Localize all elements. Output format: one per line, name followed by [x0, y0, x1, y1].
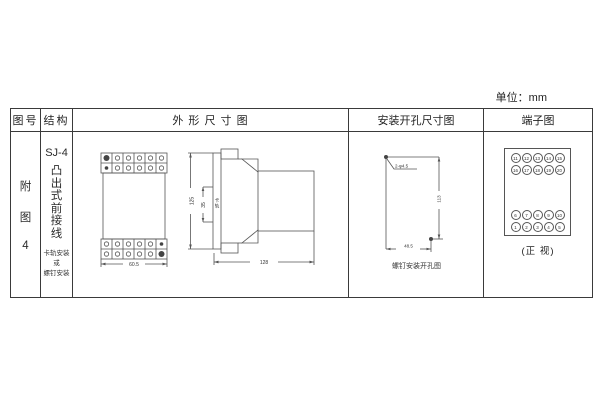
mounting-note: 卡轨安装或螺钉安装	[44, 249, 70, 278]
noteline: 卡轨安装	[44, 249, 70, 259]
model-label: SJ-4	[45, 147, 68, 159]
structure-type-vertical-text: 凸出式前接线	[51, 165, 63, 240]
terminal-block-diagram: 1112131415 1617181920 678910 12345	[504, 148, 571, 236]
tcircle: 15	[555, 153, 565, 163]
manual-page: 单位：mm 图号 结构 外 形 尺 寸 图 安装开孔尺寸图 端子图 附图4 SJ…	[0, 0, 600, 400]
vchar: 接	[51, 215, 63, 228]
terminal-row: 1112131415	[505, 153, 570, 163]
tcircle: 7	[522, 210, 532, 220]
front-view-drawing: 60.5	[98, 147, 173, 269]
side-length-dim: 128	[260, 260, 269, 266]
tcircle: 8	[533, 210, 543, 220]
tcircle: 18	[533, 165, 543, 175]
vchar: 出	[51, 178, 63, 191]
mounting-hole-drawing: 2-φ4.5 113 48.5	[379, 149, 449, 261]
spec-table: 图号 结构 外 形 尺 寸 图 安装开孔尺寸图 端子图 附图4 SJ-4 凸出式…	[10, 108, 593, 298]
unit-label: 单位：mm	[496, 89, 547, 105]
terminal-bottom-group: 678910 12345	[505, 210, 570, 232]
cell-structure: SJ-4 凸出式前接线 卡轨安装或螺钉安装	[41, 132, 73, 297]
terminal-row: 12345	[505, 222, 570, 232]
cell-terminal-diagram: 1112131415 1617181920 678910 12345 (正 视)	[484, 132, 592, 297]
tcircle: 13	[533, 153, 543, 163]
tcircle: 10	[555, 210, 565, 220]
cell-fig-no: 附图4	[11, 132, 41, 297]
tcircle: 12	[522, 153, 532, 163]
side-view-drawing: 125 35 卡 轨 128	[186, 144, 321, 274]
front-width-dim: 60.5	[129, 262, 139, 268]
mounting-hole-mark	[384, 155, 388, 159]
header-fig-no: 图号	[11, 109, 41, 132]
noteline: 螺钉安装	[44, 269, 70, 279]
vchar: 4	[22, 240, 28, 252]
vchar: 凸	[51, 165, 63, 178]
tcircle: 16	[511, 165, 521, 175]
terminal-row: 1617181920	[505, 165, 570, 175]
noteline: 或	[44, 259, 70, 269]
tcircle: 9	[544, 210, 554, 220]
terminal-row: 678910	[505, 210, 570, 220]
vchar: 附	[20, 178, 32, 194]
vchar: 式	[51, 190, 63, 203]
tcircle: 20	[555, 165, 565, 175]
tcircle: 19	[544, 165, 554, 175]
mounting-hole-mark	[429, 237, 433, 241]
mounting-vertical-dim: 113	[437, 195, 442, 203]
tcircle: 14	[544, 153, 554, 163]
holes-label: 2-φ4.5	[395, 164, 409, 169]
tcircle: 2	[522, 222, 532, 232]
tcircle: 1	[511, 222, 521, 232]
rail-width-dim: 35	[201, 202, 207, 208]
tcircle: 6	[511, 210, 521, 220]
header-mounting-holes: 安装开孔尺寸图	[349, 109, 484, 132]
header-terminal-diagram: 端子图	[484, 109, 592, 132]
vchar: 前	[51, 203, 63, 216]
screw-mark-icon	[104, 155, 110, 161]
tcircle: 17	[522, 165, 532, 175]
cell-outline-drawing: 60.5	[73, 132, 349, 297]
tcircle: 4	[544, 222, 554, 232]
mounting-caption: 螺钉安装开孔图	[349, 261, 484, 271]
terminal-top-group: 1112131415 1617181920	[505, 153, 570, 175]
terminal-caption: (正 视)	[484, 243, 592, 257]
side-height-dim: 125	[190, 197, 196, 206]
cell-mounting-holes: 2-φ4.5 113 48.5 螺钉安装开孔图	[349, 132, 484, 297]
header-structure: 结构	[41, 109, 73, 132]
vchar: 图	[20, 209, 32, 225]
tcircle: 3	[533, 222, 543, 232]
header-outline-drawing: 外 形 尺 寸 图	[73, 109, 349, 132]
tcircle: 11	[511, 153, 521, 163]
mounting-horizontal-dim: 48.5	[404, 243, 413, 248]
tcircle: 5	[555, 222, 565, 232]
rail-label: 轨	[215, 203, 220, 210]
vchar: 线	[51, 228, 63, 241]
screw-mark-icon	[159, 251, 165, 257]
